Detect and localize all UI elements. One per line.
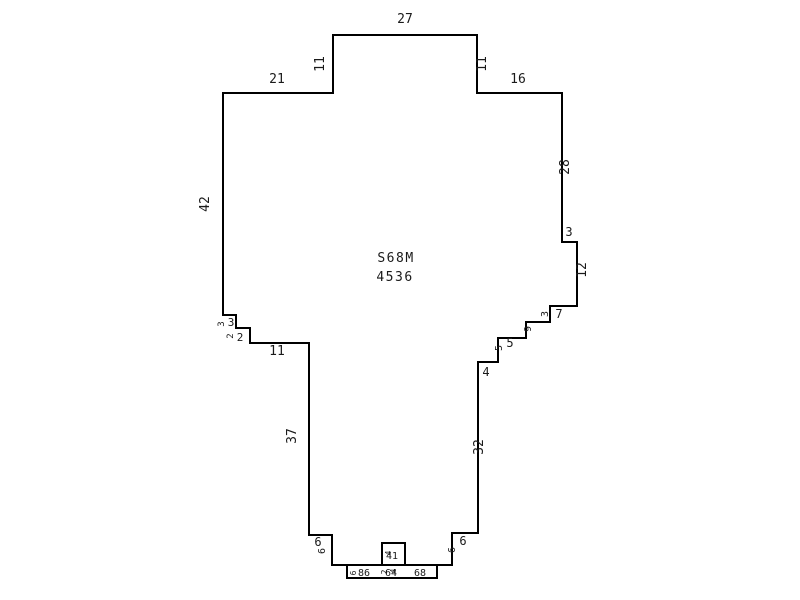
parcel-id-line1: S68M — [377, 251, 414, 266]
dimension-label: 6 — [349, 570, 358, 575]
dimension-label: 2 — [237, 331, 244, 344]
dimension-label: 11 — [313, 56, 328, 72]
dimension-label: 6 — [314, 535, 321, 549]
dimension-label: 3 — [217, 321, 227, 326]
parcel-sketch-page: 2711112116422831237955432371133226666686… — [0, 0, 800, 600]
dimension-label: 11 — [269, 344, 285, 359]
dimension-label-layer: 2711112116422831237955432371133226666686… — [198, 12, 590, 579]
dimension-label: 86 — [358, 568, 370, 579]
parcel-boundary — [223, 35, 577, 565]
parcel-outline-layer — [223, 35, 577, 578]
dimension-label: 11 — [475, 56, 490, 72]
dimension-label: 9 — [523, 326, 534, 332]
dimension-label: 6 — [317, 548, 328, 554]
dimension-label: 6 — [447, 547, 458, 553]
dimension-label: 3 — [565, 225, 572, 239]
dimension-label: 3 — [228, 316, 235, 329]
dimension-label: 32 — [472, 439, 487, 455]
dimension-label: 2 — [226, 333, 236, 338]
dimension-label: 6 — [459, 534, 466, 548]
dimension-label: 5 — [506, 336, 513, 350]
dimension-label: 68 — [414, 568, 426, 579]
dimension-label: 28 — [558, 159, 573, 175]
dimension-label: 5 — [494, 345, 505, 351]
dimension-label: 4 — [482, 365, 489, 379]
dimension-label: 37 — [285, 428, 300, 444]
dimension-label: 12 — [575, 262, 590, 278]
dimension-label: 7 — [555, 307, 562, 321]
dimension-label: 4 — [389, 568, 398, 573]
dimension-label: 16 — [510, 72, 526, 87]
dimension-label: 2 — [380, 569, 389, 574]
dimension-label: 27 — [397, 12, 413, 27]
dimension-label: 3 — [540, 311, 551, 317]
dimension-label: 21 — [269, 72, 285, 87]
dimension-label: 42 — [198, 196, 213, 212]
parcel-sketch-canvas: 2711112116422831237955432371133226666686… — [0, 0, 800, 600]
dimension-label: 4 — [384, 550, 393, 555]
parcel-id-line2: 4536 — [376, 270, 413, 285]
